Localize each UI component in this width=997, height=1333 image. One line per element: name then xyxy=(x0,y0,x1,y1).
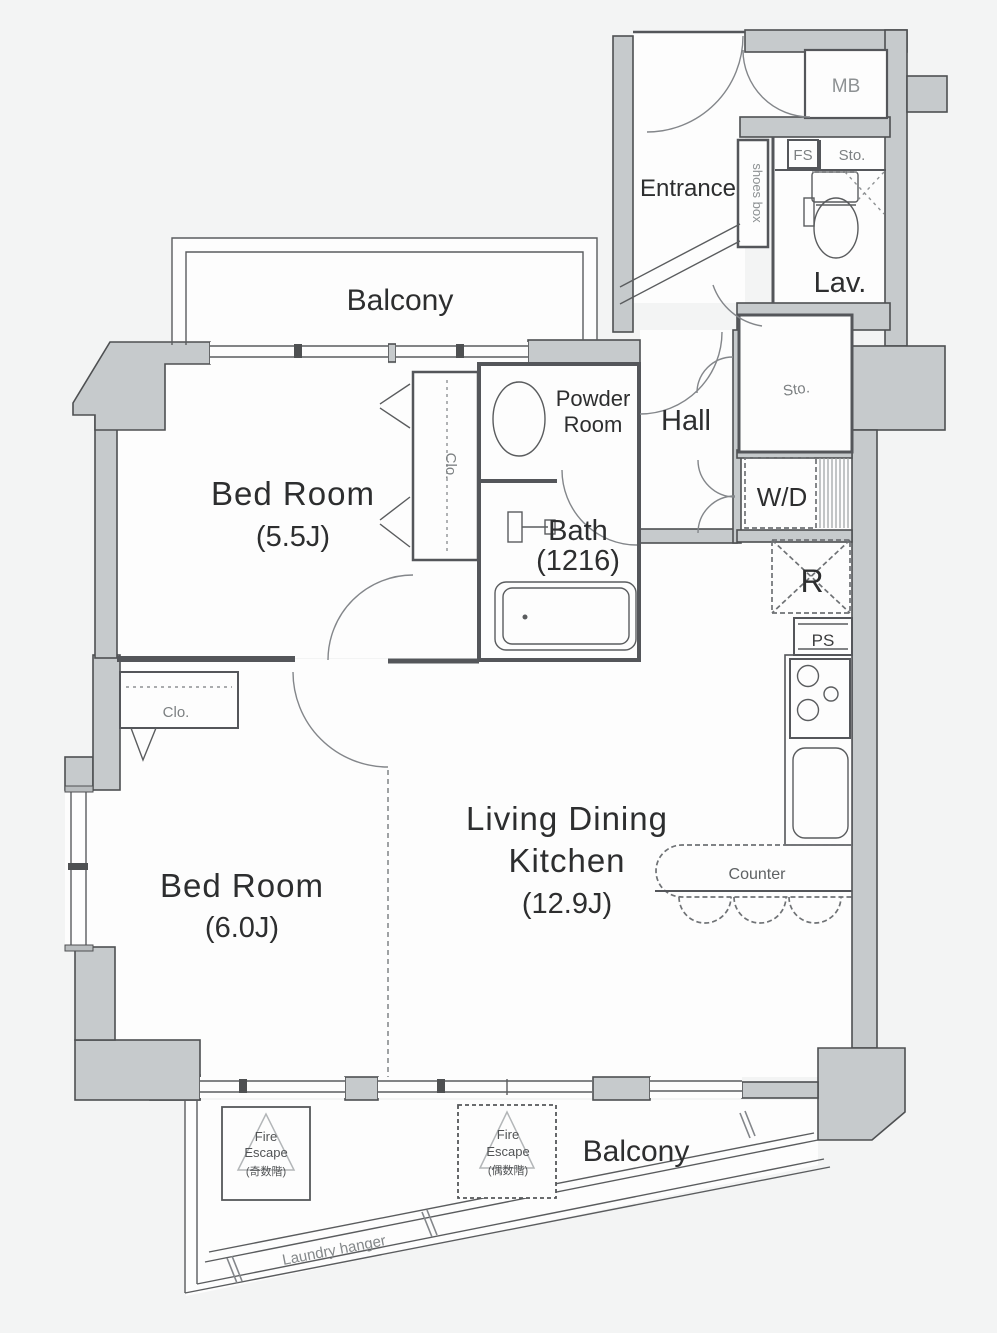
window-bottom-1 xyxy=(200,1077,345,1098)
bedroom2-size-label: (6.0J) xyxy=(205,912,279,944)
fire-escape-odd-label-2: Escape xyxy=(244,1145,287,1160)
shoes-box-label: shoes box xyxy=(750,163,765,223)
powder-room-label-1: Powder xyxy=(556,386,631,411)
bedroom2-label: Bed Room xyxy=(160,867,324,904)
refrigerator-label: R xyxy=(800,563,823,599)
entrance-label: Entrance xyxy=(640,175,736,202)
bath-size-label: (1216) xyxy=(536,545,620,577)
powder-room-label-2: Room xyxy=(564,412,623,437)
closet-bedroom1-label: Clo. xyxy=(442,453,459,480)
closet-bedroom2-label: Clo. xyxy=(163,704,190,721)
bedroom1-size-label: (5.5J) xyxy=(256,521,330,553)
ldk-size-label: (12.9J) xyxy=(522,888,612,920)
window-top-1 xyxy=(210,342,388,364)
fire-escape-odd-label-1: Fire xyxy=(255,1129,277,1144)
floor-plan-svg: Balcony Entrance MB FS Sto. shoes box La… xyxy=(0,0,997,1333)
ps-label: PS xyxy=(812,631,835,650)
window-bottom-3 xyxy=(650,1077,742,1098)
floor-plan-page: Balcony Entrance MB FS Sto. shoes box La… xyxy=(0,0,997,1333)
counter-label: Counter xyxy=(729,866,787,883)
fire-escape-even-label-3: (偶数階) xyxy=(488,1163,528,1177)
window-bottom-2 xyxy=(378,1077,592,1098)
sto-upper-label: Sto. xyxy=(839,147,866,164)
window-left xyxy=(65,786,93,951)
fire-escape-odd-label-3: (奇数階) xyxy=(246,1164,286,1178)
balcony-top-label: Balcony xyxy=(347,284,454,317)
bedroom1-label: Bed Room xyxy=(211,475,375,512)
ldk-label-2: Kitchen xyxy=(508,842,625,879)
hall-label: Hall xyxy=(661,405,711,437)
window-top-2 xyxy=(396,342,528,364)
balcony-bottom-label: Balcony xyxy=(583,1135,690,1168)
lav-label: Lav. xyxy=(814,267,867,299)
bath-label: Bath xyxy=(548,515,608,547)
fs-label: FS xyxy=(793,147,812,164)
ldk-label-1: Living Dining xyxy=(466,800,668,837)
fire-escape-even-label-1: Fire xyxy=(497,1127,519,1142)
wd-label: W/D xyxy=(757,482,808,512)
kitchen-unit xyxy=(785,655,852,845)
fire-escape-even-label-2: Escape xyxy=(486,1144,529,1159)
mb-label: MB xyxy=(832,76,861,97)
